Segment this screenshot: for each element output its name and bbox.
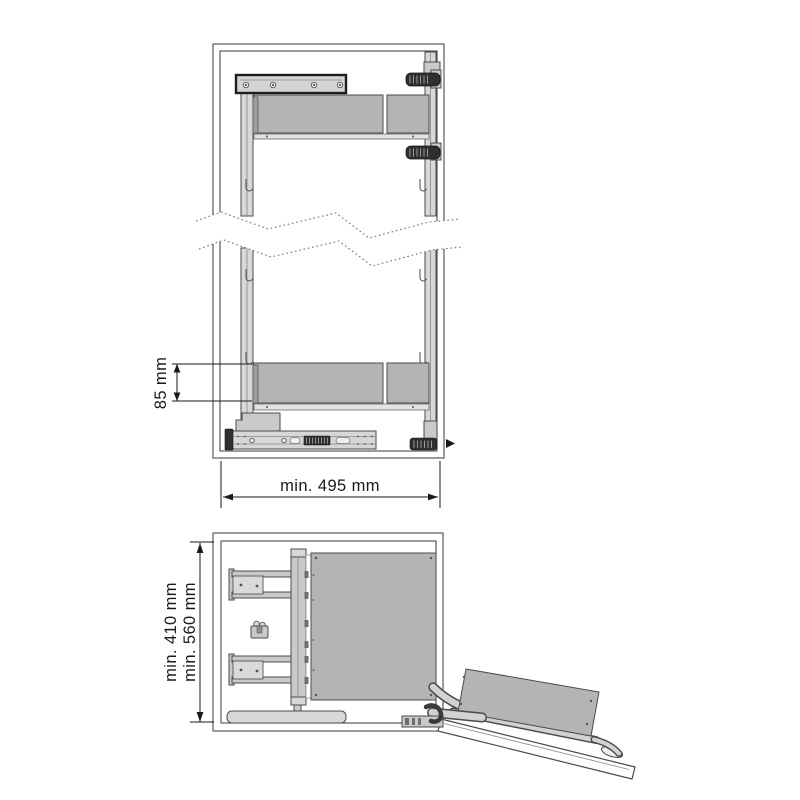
door-bracket-clamp-top [406, 70, 441, 88]
dimension-410-560: min. 410 mm min. 560 mm [162, 542, 214, 722]
shelf-basket-top [253, 95, 429, 139]
shelf-basket-bottom [253, 363, 429, 410]
larder-unit-technical-drawing: 85 mm [0, 0, 800, 800]
dimension-560mm-label: min. 560 mm [181, 582, 199, 682]
dimension-495mm: min. 495 mm [221, 461, 440, 508]
front-view-drawing: 85 mm [152, 44, 462, 508]
top-view-drawing: min. 410 mm min. 560 mm [162, 533, 635, 779]
frame-rail-left [241, 92, 253, 432]
direction-arrow [446, 439, 455, 448]
door-rail-end-hook [594, 740, 624, 760]
mounting-clip [251, 621, 268, 638]
dimension-495mm-label: min. 495 mm [280, 477, 380, 495]
top-mounting-rail [236, 75, 346, 93]
frame-column [291, 549, 311, 705]
pullout-unit-panel [311, 553, 436, 700]
dimension-410mm-label: min. 410 mm [162, 582, 180, 682]
page: { "colors": { "background": "#ffffff", "… [0, 0, 800, 800]
dimension-85mm-label: 85 mm [152, 357, 170, 409]
